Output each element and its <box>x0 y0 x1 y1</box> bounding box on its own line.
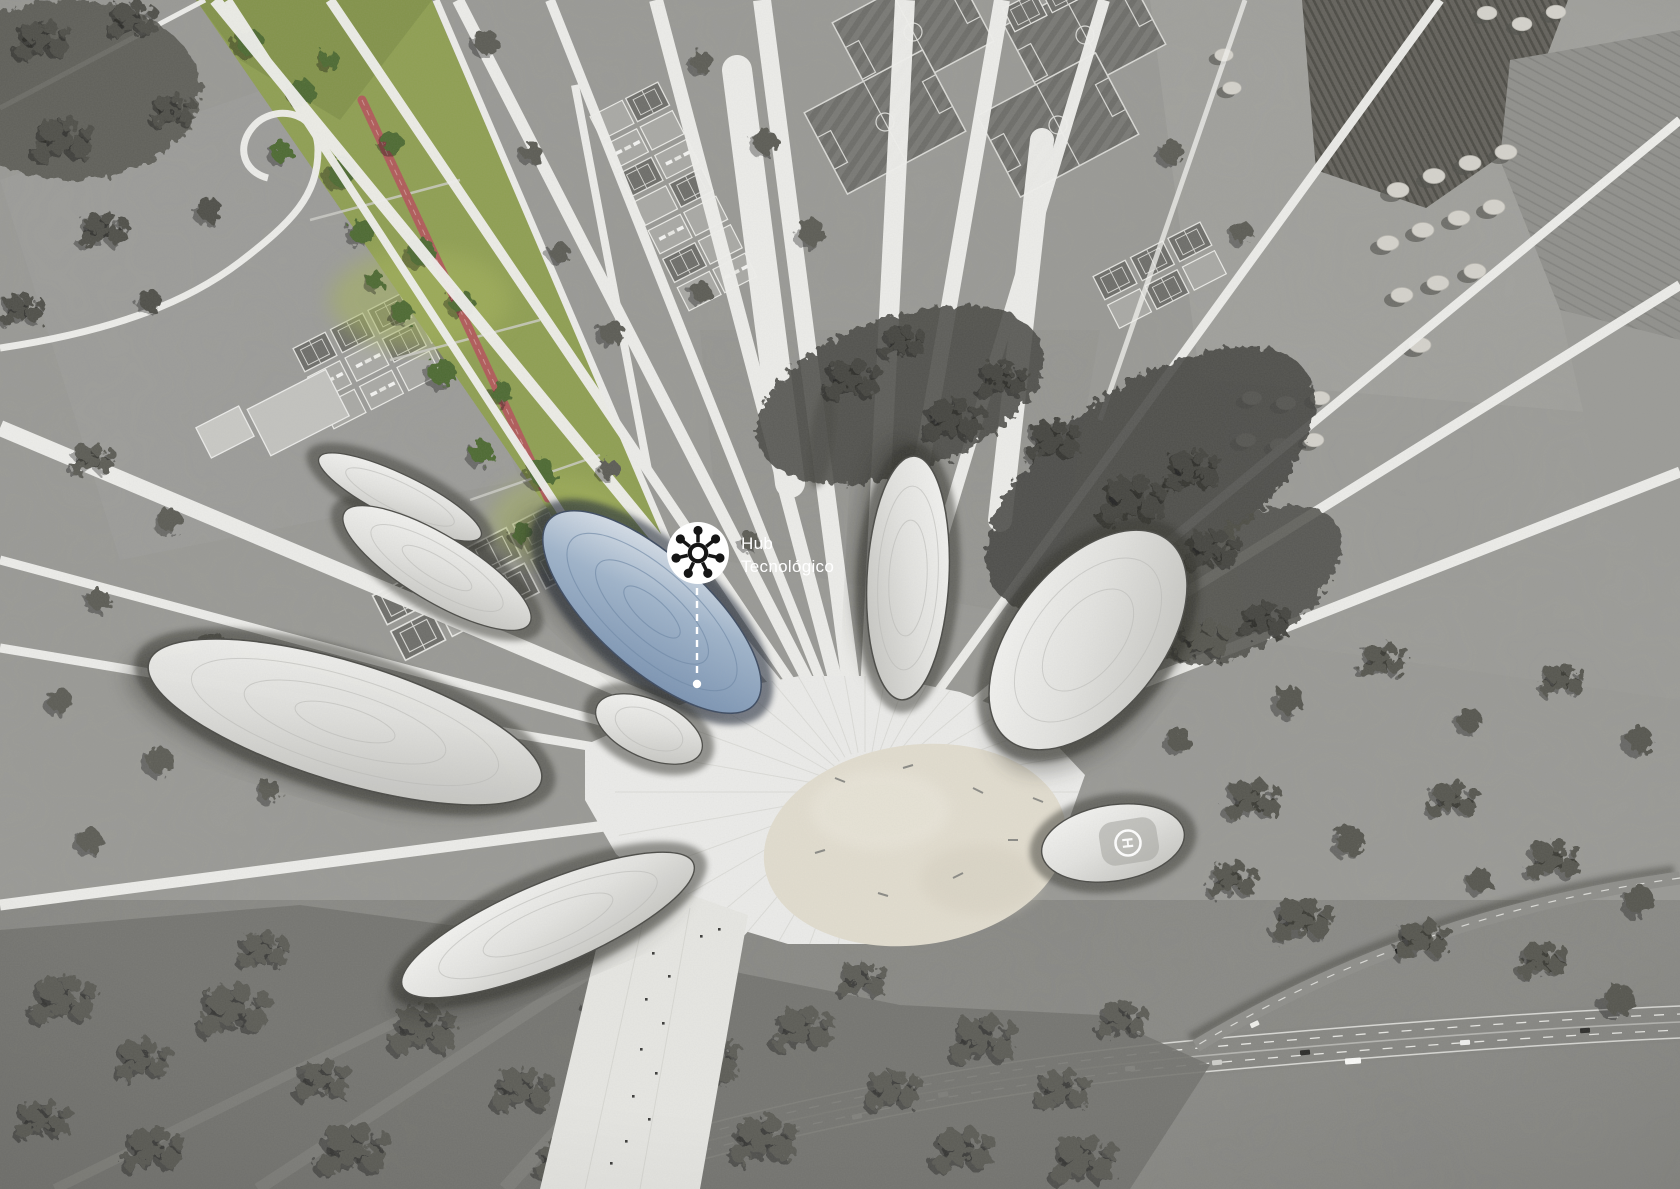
annotation-anchor-dot <box>693 680 701 688</box>
masterplan-canvas: H Hub Tecnológico <box>0 0 1680 1189</box>
aerial-masterplan-view: H Hub Tecnológico <box>0 0 1680 1189</box>
annotation-label-line2[interactable]: Tecnológico <box>741 557 834 576</box>
annotation-label-line1[interactable]: Hub <box>741 534 773 553</box>
film-grain-overlay <box>0 0 1680 1189</box>
